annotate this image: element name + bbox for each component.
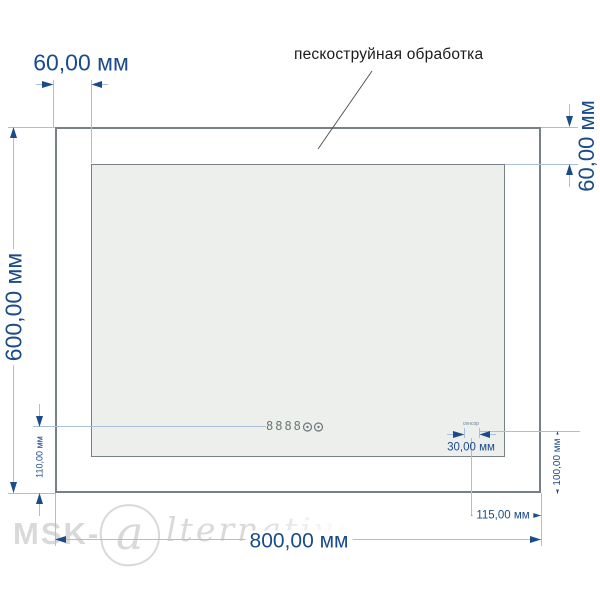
dim-sensor-height: 100,00 мм — [553, 434, 563, 489]
display-button-icons — [304, 423, 323, 431]
touch-button-dot-icon — [317, 426, 319, 428]
technical-drawing: MSK- a lternativa — [0, 0, 600, 600]
touch-button-dot-icon — [306, 426, 308, 428]
dim-width: 800,00 мм — [246, 531, 353, 552]
leader-line — [318, 71, 372, 149]
sensor-label: сенсор — [463, 421, 479, 427]
dim-border-right: 60,00 мм — [576, 100, 598, 191]
annotation-label: пескоструйная обработка — [294, 46, 483, 64]
dim-height: 600,00 мм — [3, 249, 26, 365]
dim-display-height: 110,00 мм — [36, 436, 45, 478]
dim-sensor-offset: 115,00 мм — [472, 510, 533, 522]
dim-border-top: 60,00 мм — [33, 52, 129, 75]
dim-sensor-width: 30,00 мм — [447, 442, 495, 454]
led-display-value: 8888 — [266, 420, 303, 432]
dimension-arrows — [10, 81, 573, 543]
